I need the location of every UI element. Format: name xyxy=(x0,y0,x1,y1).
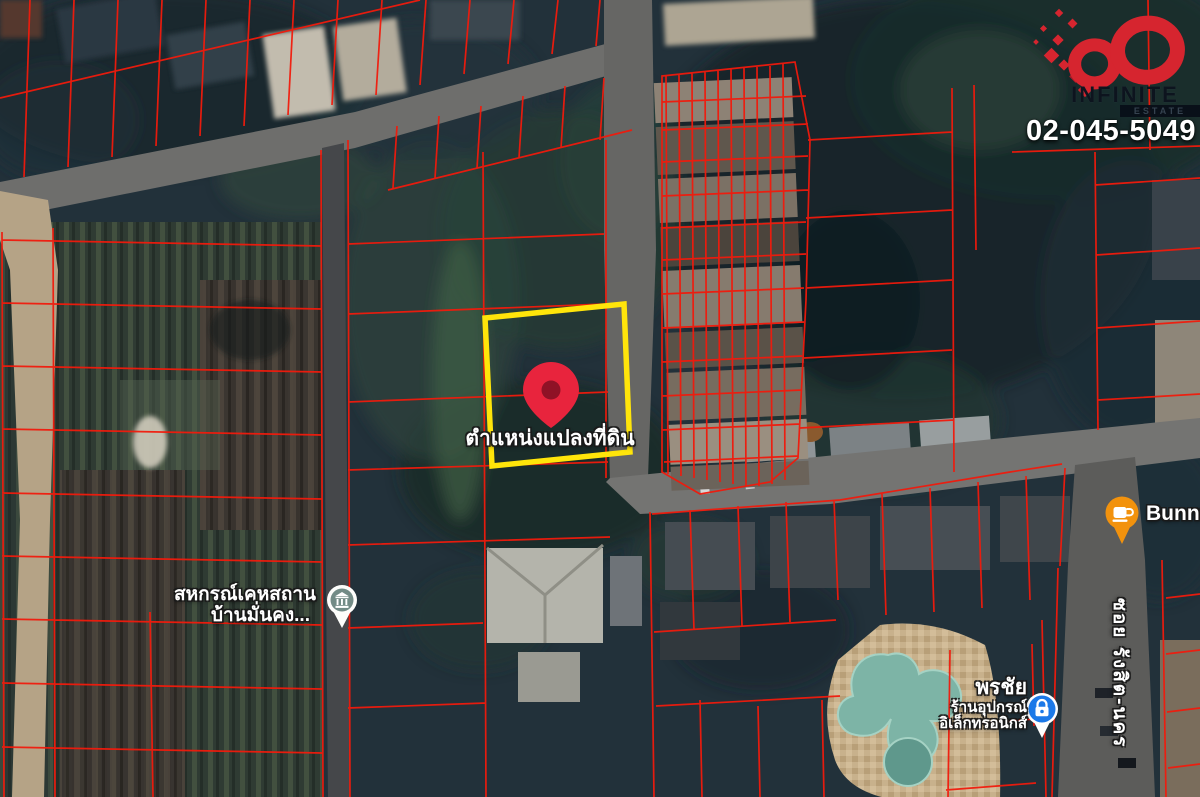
poi-electronics-label: พรชัย ร้านอุปกรณ์ อิเล็กทรอนิกส์ xyxy=(900,676,1027,733)
poi-cafe-label: BunnCh xyxy=(1146,502,1200,526)
bank-icon xyxy=(322,582,362,632)
poi-cafe xyxy=(1104,496,1142,553)
map-canvas: ตำแหน่งแปลงที่ดิน สหกรณ์เคหสถาน บ้านมั่น… xyxy=(0,0,1200,797)
electronics-label-line1: พรชัย xyxy=(900,676,1027,700)
target-plot-label: ตำแหน่งแปลงที่ดิน xyxy=(452,427,648,451)
electronics-label-line3: อิเล็กทรอนิกส์ xyxy=(900,716,1027,733)
phone-number: 02-045-5049 xyxy=(1022,115,1200,148)
poi-housing-coop xyxy=(322,582,362,637)
poi-housing-coop-label: สหกรณ์เคหสถาน บ้านมั่นคง... xyxy=(140,584,316,627)
coop-label-line2: บ้านมั่นคง... xyxy=(140,605,316,626)
shopping-icon xyxy=(1023,692,1061,742)
electronics-label-line2: ร้านอุปกรณ์ xyxy=(900,700,1027,717)
road-name-label: ซอย รังสิต-นคร xyxy=(1104,598,1130,797)
coffee-icon xyxy=(1104,496,1142,548)
coop-label-line1: สหกรณ์เคหสถาน xyxy=(174,584,316,605)
poi-electronics xyxy=(1023,692,1061,747)
